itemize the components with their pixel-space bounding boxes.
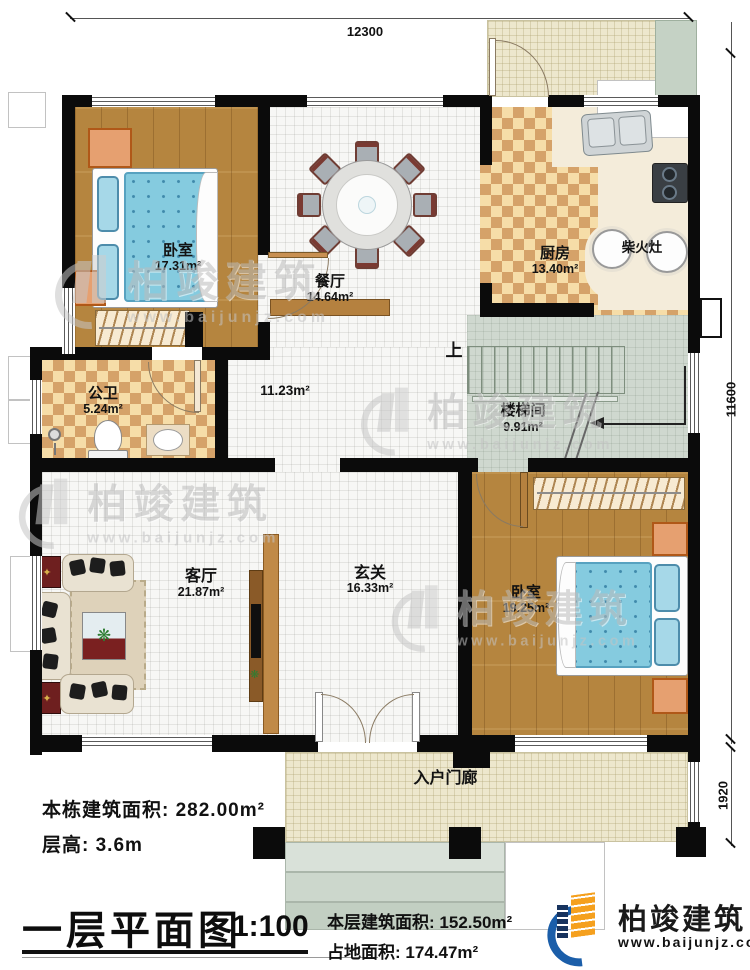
window: [584, 95, 658, 107]
window: [82, 735, 212, 752]
stair-up-label: 上: [440, 342, 468, 361]
stair-direction-line: [604, 423, 686, 425]
sofa-cushion: [42, 653, 59, 670]
stair-direction-line: [684, 366, 686, 423]
wall: [688, 433, 700, 755]
dining-area: 14.64m²: [281, 291, 379, 305]
bed-pillow: [97, 244, 119, 300]
dim-top-width: 12300: [315, 24, 415, 39]
tv-feature-wall: [263, 534, 279, 734]
nightstand: [652, 678, 688, 714]
sink-basin: [587, 117, 616, 148]
building-area-value: 282.00m²: [176, 800, 265, 821]
foyer-area: 16.33m²: [321, 582, 419, 596]
logo-building: [571, 892, 595, 937]
flue-box: [700, 298, 722, 338]
logo-core: [557, 904, 568, 938]
floor-height-note: 层高: 3.6m: [42, 830, 143, 857]
wall: [212, 735, 318, 752]
dim-porch-depth: 1920: [716, 771, 731, 821]
entry-porch-label: 入户门廊: [388, 770, 503, 788]
wall: [688, 95, 700, 353]
bathroom-label: 公卫: [58, 386, 148, 403]
bedroom1-area: 17.31m²: [129, 260, 227, 274]
lazy-susan: [358, 196, 376, 214]
window: [688, 762, 700, 822]
tv: [251, 604, 261, 658]
nightstand: [652, 522, 688, 556]
wall: [443, 95, 492, 107]
wall: [548, 95, 584, 107]
wall: [202, 347, 270, 360]
brand-logo-icon: [545, 890, 609, 954]
wall: [258, 322, 270, 347]
kitchen-label: 厨房: [510, 246, 600, 263]
building-area-label: 本栋建筑面积:: [42, 800, 169, 821]
window: [30, 380, 42, 434]
bed-pillow: [97, 176, 119, 232]
window: [307, 95, 443, 107]
coffee-table: ❋: [82, 612, 126, 660]
wall: [458, 472, 472, 735]
shower-drain: [48, 428, 61, 441]
wall: [258, 107, 270, 255]
floor-height-value: 3.6m: [96, 835, 143, 856]
wall: [185, 312, 203, 347]
hallway-floor: [228, 347, 467, 472]
stairwell-area: 9.91m²: [477, 421, 569, 435]
sofa-cushion: [89, 557, 106, 574]
plan-title: 一层平面图: [22, 898, 242, 956]
sofa-cushion: [69, 683, 86, 700]
dining-label: 餐厅: [285, 274, 375, 291]
porch-column: [449, 827, 481, 859]
floorplan-sheet: 12300 11600 1920: [0, 0, 750, 970]
title-underline: [22, 950, 308, 954]
wall: [30, 458, 275, 472]
bed-pillow: [654, 564, 680, 612]
nightstand: [88, 128, 132, 168]
floor-area-note: 本层建筑面积: 152.50m²: [327, 908, 512, 933]
living-label: 客厅: [156, 568, 246, 586]
door-leaf: [489, 38, 496, 96]
bedroom2-label: 卧室: [486, 585, 566, 602]
floor-height-label: 层高:: [42, 835, 89, 856]
wall: [30, 735, 82, 752]
cabinet-plant: ❋: [250, 668, 262, 680]
wall: [528, 458, 700, 472]
window: [92, 95, 215, 107]
wall-pier: [453, 752, 490, 768]
kitchen-area: 13.40m²: [505, 263, 605, 277]
bed-mattress: [566, 562, 652, 668]
porch-step: [285, 872, 505, 902]
stove-burner: [662, 185, 677, 200]
dining-chair: [413, 193, 437, 217]
wardrobe-rail: [99, 327, 186, 329]
wall: [417, 735, 515, 752]
foyer-label: 玄关: [325, 565, 415, 583]
rear-porch-green-strip: [655, 20, 697, 97]
building-area-note: 本栋建筑面积: 282.00m²: [42, 795, 265, 822]
window: [30, 556, 42, 650]
bedroom1-label: 卧室: [133, 243, 223, 260]
floor-area-label: 本层建筑面积:: [327, 913, 435, 932]
wardrobe-rail: [537, 492, 681, 494]
stair-treads: [467, 346, 625, 394]
living-area: 21.87m²: [152, 586, 250, 600]
bed-sheet: [196, 172, 218, 302]
sofa-cushion: [40, 627, 57, 644]
wall: [480, 107, 492, 165]
stairwell-label: 楼梯间: [477, 403, 569, 420]
wall: [215, 95, 307, 107]
footprint-value: 174.47m²: [405, 943, 478, 962]
wall: [340, 458, 478, 472]
porch-column: [676, 827, 706, 857]
dim-line-top: [70, 18, 690, 19]
footprint-note: 占地面积: 174.47m²: [327, 938, 478, 963]
wood-stove-label: 柴火灶: [596, 241, 688, 256]
plan-scale: 1:100: [232, 910, 309, 944]
hallway-area: 11.23m²: [240, 384, 330, 399]
window: [688, 353, 700, 433]
dim-tick: [65, 12, 76, 23]
shower-stem: [54, 443, 56, 455]
sofa-cushion: [91, 681, 109, 699]
brand-url: www.baijunjz.com: [618, 934, 750, 950]
sofa-cushion: [109, 560, 125, 576]
bathroom-basin: [153, 429, 183, 451]
bed-pillow: [654, 618, 680, 666]
bathroom-area: 5.24m²: [54, 403, 152, 417]
sink-basin: [618, 115, 647, 146]
brand-name: 柏竣建筑: [618, 896, 746, 938]
floor-area-value: 152.50m²: [439, 913, 512, 932]
wall: [42, 347, 152, 360]
toilet-bowl: [94, 420, 122, 454]
dim-line-porch: [731, 748, 732, 846]
porch-column: [253, 827, 285, 859]
stair-arrow-head: [590, 417, 604, 429]
window: [515, 735, 647, 752]
exterior-pier-outline: [8, 92, 46, 128]
stove-burner: [662, 167, 677, 182]
footprint-label: 占地面积:: [327, 943, 401, 962]
dim-right-height: 11600: [724, 369, 739, 431]
wall: [480, 303, 594, 317]
title-underline-thin: [22, 957, 378, 958]
dining-chair: [297, 193, 321, 217]
sofa-cushion: [111, 684, 127, 700]
window: [62, 288, 75, 354]
bedroom2-area: 19.25m²: [482, 602, 570, 616]
sofa-cushion: [69, 559, 87, 577]
wall: [215, 360, 228, 460]
